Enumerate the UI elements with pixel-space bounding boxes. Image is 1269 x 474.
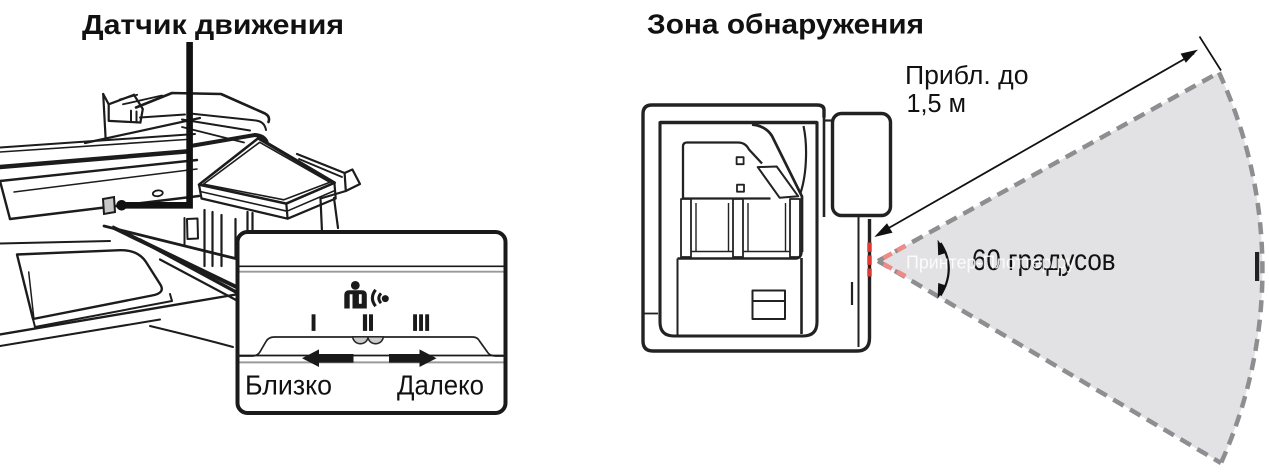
svg-text:Датчик движения: Датчик движения xyxy=(82,9,344,40)
svg-text:Принтер-Плоттер.ру: Принтер-Плоттер.ру xyxy=(906,252,1076,273)
svg-text:Далеко: Далеко xyxy=(397,370,484,401)
svg-text:Зона обнаружения: Зона обнаружения xyxy=(647,8,924,39)
svg-text:Близко: Близко xyxy=(245,370,332,401)
svg-text:Прибл. до: Прибл. до xyxy=(905,62,1029,90)
svg-text:1,5 м: 1,5 м xyxy=(907,90,967,118)
